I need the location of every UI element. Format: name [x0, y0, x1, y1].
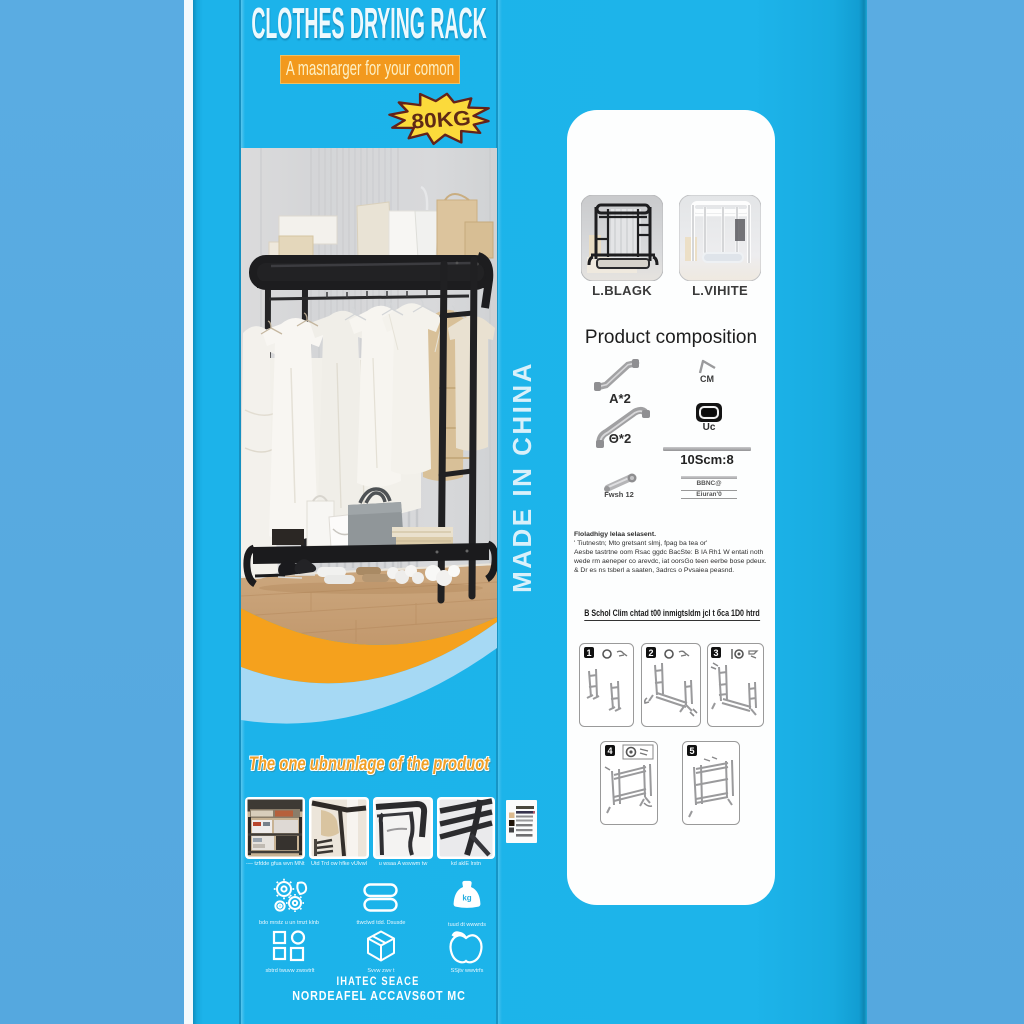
svg-text:2: 2: [648, 648, 653, 658]
svg-text:5: 5: [689, 746, 694, 756]
svg-text:3: 3: [713, 648, 718, 658]
svg-text:kg: kg: [462, 894, 471, 903]
svg-text:80KG: 80KG: [411, 106, 472, 134]
svg-text:4: 4: [607, 746, 612, 756]
svg-text:1: 1: [586, 648, 591, 658]
